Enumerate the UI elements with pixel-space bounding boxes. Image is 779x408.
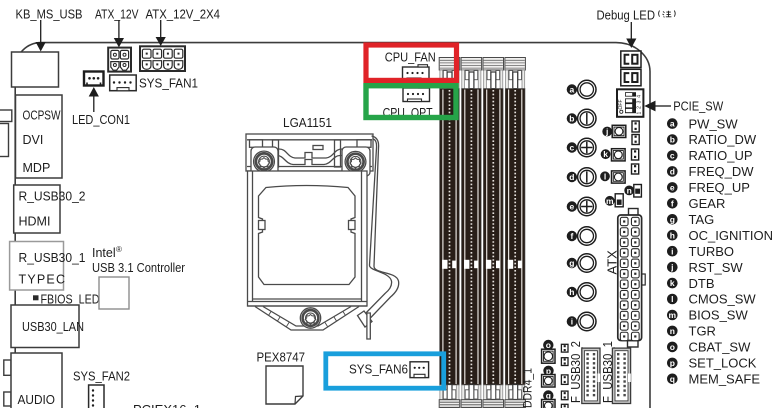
svg-text:ATX_12V: ATX_12V: [95, 7, 139, 22]
svg-text:g: g: [569, 258, 574, 268]
svg-text:DDR4_1: DDR4_1: [523, 368, 535, 408]
svg-text:FREQ_DW: FREQ_DW: [689, 164, 755, 179]
svg-text:c: c: [570, 143, 575, 153]
svg-text:USB 3.1 Controller: USB 3.1 Controller: [92, 261, 185, 275]
svg-text:SYS_FAN6: SYS_FAN6: [349, 361, 408, 376]
svg-text:PCIE_SW: PCIE_SW: [673, 99, 724, 114]
svg-text:LED_CON1: LED_CON1: [72, 112, 130, 127]
svg-text:d: d: [670, 167, 675, 177]
svg-text:R_USB30_1: R_USB30_1: [19, 251, 86, 265]
svg-text:SET_LOCK: SET_LOCK: [689, 356, 757, 371]
svg-text:DTB: DTB: [689, 276, 715, 291]
svg-text:k: k: [603, 149, 608, 159]
svg-text:PEX8747: PEX8747: [257, 350, 306, 365]
svg-text:1234: 1234: [637, 92, 643, 114]
svg-text:h: h: [670, 230, 675, 240]
svg-text:j: j: [670, 262, 673, 272]
svg-text:l: l: [604, 171, 606, 181]
svg-text:o: o: [670, 342, 675, 352]
svg-text:b: b: [670, 135, 675, 145]
svg-text:f: f: [671, 198, 674, 208]
svg-text:OC_IGNITION: OC_IGNITION: [689, 228, 774, 243]
svg-text:TGR: TGR: [689, 324, 716, 339]
svg-text:n: n: [627, 185, 632, 195]
svg-text:USB30_LAN: USB30_LAN: [22, 320, 84, 334]
svg-text:m: m: [606, 196, 614, 206]
svg-text:OCPSW: OCPSW: [23, 109, 61, 123]
svg-text:SYS_FAN1: SYS_FAN1: [139, 76, 198, 91]
svg-text:b: b: [569, 114, 574, 124]
svg-text:a: a: [570, 85, 575, 95]
svg-text:CMOS_SW: CMOS_SW: [689, 292, 757, 307]
svg-text:i: i: [571, 317, 573, 327]
svg-text:PW_SW: PW_SW: [689, 116, 739, 131]
svg-text:p: p: [670, 358, 675, 368]
svg-text:LGA1151: LGA1151: [283, 115, 332, 130]
svg-text:TURBO: TURBO: [689, 244, 735, 259]
svg-text:RST_SW: RST_SW: [689, 260, 744, 275]
svg-text:c: c: [670, 151, 675, 161]
svg-text:TAG: TAG: [689, 212, 715, 227]
svg-text:f: f: [570, 231, 573, 241]
svg-text:TYPEC: TYPEC: [19, 273, 67, 287]
svg-text:DVI: DVI: [23, 133, 44, 147]
svg-text:AUDIO: AUDIO: [18, 393, 56, 407]
svg-text:FREQ_UP: FREQ_UP: [689, 180, 750, 195]
svg-text:R_USB30_2: R_USB30_2: [19, 190, 86, 204]
svg-text:F_USB30_2: F_USB30_2: [568, 341, 583, 403]
svg-text:a: a: [670, 119, 675, 129]
svg-text:q: q: [670, 374, 675, 384]
svg-text:h: h: [569, 287, 574, 297]
svg-text:®: ®: [116, 245, 122, 254]
svg-text:k: k: [670, 278, 675, 288]
svg-text:g: g: [670, 214, 675, 224]
svg-text:MEM_SAFE: MEM_SAFE: [689, 372, 761, 387]
svg-text:OFF: OFF: [618, 100, 624, 110]
svg-text:HDMI: HDMI: [19, 215, 51, 229]
svg-text:CPU_FAN: CPU_FAN: [385, 49, 436, 64]
svg-text:e: e: [570, 202, 575, 212]
svg-text:KB_MS_USB: KB_MS_USB: [16, 7, 83, 22]
svg-text:n: n: [670, 326, 675, 336]
svg-text:GEAR: GEAR: [689, 196, 726, 211]
svg-text:e: e: [670, 183, 675, 193]
svg-text:PCIEX16_1: PCIEX16_1: [133, 402, 201, 408]
svg-text:i: i: [671, 246, 673, 256]
svg-text:m: m: [669, 310, 677, 320]
svg-text:Debug LED: Debug LED: [597, 7, 656, 22]
svg-text:RATIO_UP: RATIO_UP: [689, 148, 753, 163]
svg-text:RATIO_DW: RATIO_DW: [689, 132, 757, 147]
svg-text:MDP: MDP: [23, 161, 51, 175]
svg-text:ATX_12V_2X4: ATX_12V_2X4: [146, 7, 221, 22]
svg-text:Intel: Intel: [92, 246, 116, 260]
svg-text:SYS_FAN2: SYS_FAN2: [73, 369, 130, 384]
svg-text:j: j: [605, 127, 608, 137]
svg-text:d: d: [569, 172, 574, 182]
svg-text:BIOS_SW: BIOS_SW: [689, 308, 749, 323]
svg-text:CBAT_SW: CBAT_SW: [689, 340, 752, 355]
svg-text:l: l: [671, 294, 673, 304]
